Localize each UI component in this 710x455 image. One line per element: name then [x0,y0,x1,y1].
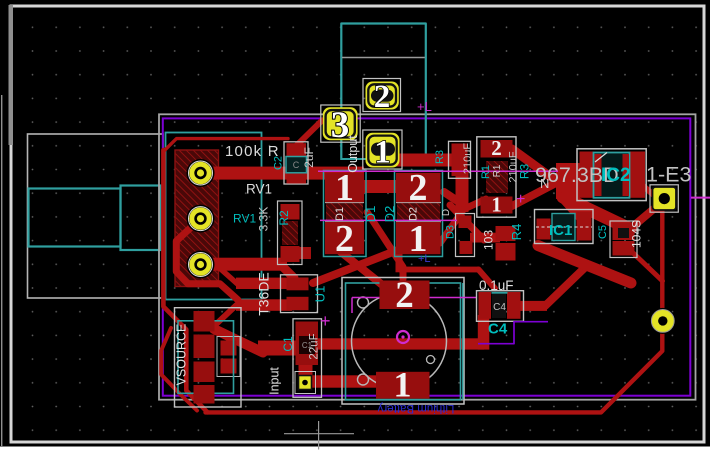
svg-text:R1: R1 [492,164,503,177]
svg-text:2: 2 [335,218,354,260]
svg-text:C1: C1 [281,336,295,352]
svg-text:Input: Input [268,367,282,395]
svg-text:2: 2 [374,79,391,115]
svg-text:+: + [516,191,525,208]
svg-text:IC2: IC2 [601,165,631,186]
svg-text:R4: R4 [509,224,524,241]
svg-text:R2: R2 [277,210,291,226]
svg-text:1: 1 [394,365,412,405]
svg-text:+: + [320,311,331,331]
svg-text:2uF: 2uF [302,147,316,168]
svg-text:D1: D1 [334,207,346,221]
svg-text:D3: D3 [445,225,457,239]
svg-text:D1: D1 [363,206,378,223]
svg-text:R1: R1 [480,165,492,179]
svg-text:22uF: 22uF [309,333,321,359]
svg-text:+L: +L [418,253,431,265]
svg-text:Output: Output [346,135,360,173]
svg-text:VSOURCE: VSOURCE [175,324,189,386]
svg-text:RV1: RV1 [246,182,272,197]
svg-text:D: D [441,209,452,216]
svg-text:2: 2 [491,136,502,160]
svg-text:R3: R3 [518,164,532,180]
svg-text:210uF: 210uF [462,143,474,174]
svg-text:IC1: IC1 [549,222,572,239]
svg-text:C4: C4 [493,302,506,313]
svg-text:104S: 104S [630,220,644,248]
svg-text:C: C [293,160,300,170]
svg-text:1: 1 [491,193,502,217]
svg-text:R3: R3 [434,150,446,164]
svg-text:D2: D2 [408,207,420,221]
svg-text:RV1: RV1 [233,212,256,226]
svg-text:0.1uF: 0.1uF [479,278,514,293]
svg-text:D2: D2 [382,206,397,223]
svg-text:C2: C2 [273,156,285,170]
svg-text:C4: C4 [488,321,508,338]
svg-text:Lithium Battery: Lithium Battery [377,402,454,414]
svg-text:+L: +L [417,99,432,114]
svg-text:1: 1 [374,135,391,171]
svg-text:U1: U1 [313,286,328,303]
svg-text:2: 2 [395,275,414,316]
svg-text:103: 103 [482,230,496,250]
svg-text:2: 2 [409,167,428,209]
svg-text:T36DE: T36DE [256,272,272,316]
svg-text:N: N [540,176,549,191]
svg-text:1-E3: 1-E3 [646,163,691,187]
svg-text:C5: C5 [597,225,609,239]
svg-text:3.3K: 3.3K [257,207,271,232]
